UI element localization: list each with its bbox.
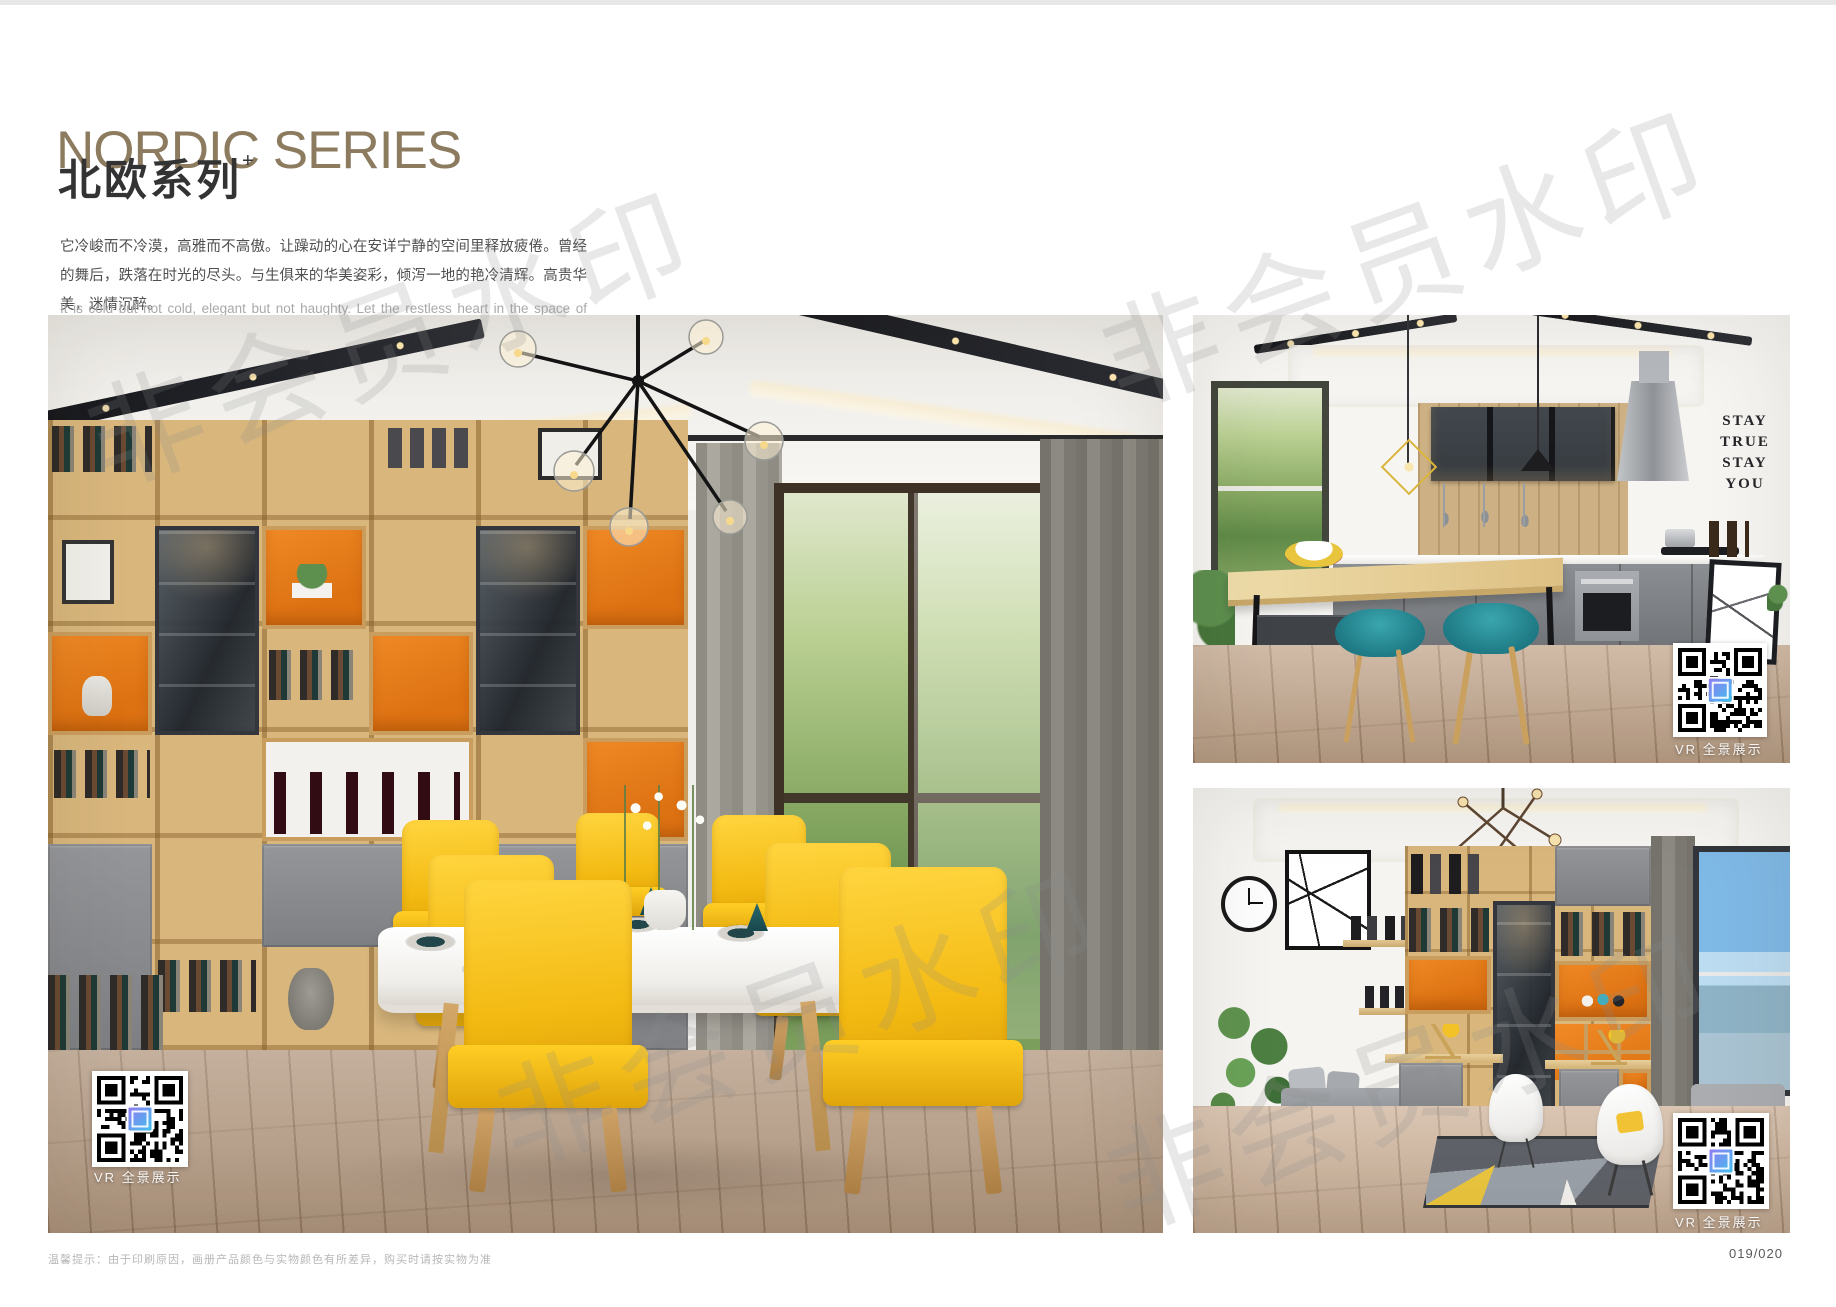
bench-cushion: [1281, 1088, 1461, 1118]
window: [1211, 381, 1329, 585]
plant-leaves: [1193, 570, 1235, 662]
desk-panel: [1399, 1063, 1463, 1125]
picture-frame: [62, 540, 114, 604]
cove-light: [1313, 349, 1673, 357]
study-room-photo: VR 全景展示: [1193, 788, 1790, 1233]
books-row: [54, 750, 150, 798]
orange-shelf-cell: [48, 632, 152, 735]
chair-pillow: [1616, 1110, 1645, 1133]
abstract-art-frame: [1285, 850, 1371, 950]
chair-seat: [703, 903, 815, 937]
orange-shelf-cell: [262, 526, 366, 629]
wall-decor-text: STAY TRUE STAY YOU: [1713, 411, 1777, 495]
gray-cabinet-door: [1555, 846, 1651, 906]
vr-panorama-label: VR 全景展示: [1675, 739, 1763, 758]
subtitle-text: 北欧系列: [58, 157, 242, 205]
stool-seat: [1335, 609, 1425, 657]
wall-text-line: STAY: [1713, 453, 1777, 474]
potted-plant: [292, 564, 332, 598]
books-row: [269, 650, 359, 700]
geometric-pendant-lamp: [1381, 439, 1438, 496]
shelf-decor-books: [1365, 986, 1419, 1008]
window-mullion-horizontal: [784, 793, 1060, 803]
vr-panorama-label: VR 全景展示: [94, 1167, 182, 1186]
shelf-decor-books: [1411, 854, 1485, 894]
sputnik-chandelier: [1433, 788, 1573, 908]
desk-lamp: [1425, 1024, 1461, 1059]
wood-panel-wall: [1418, 403, 1628, 563]
books-row: [52, 426, 152, 472]
qr-cube-logo: [1707, 677, 1734, 704]
orange-shelf-cell: [369, 632, 473, 735]
flower-vase: [644, 890, 686, 930]
orange-shelf-cell: [1405, 956, 1491, 1014]
kitchen-photo: STAY TRUE STAY YOU VR 全景展示: [1193, 315, 1790, 763]
cooktop: [1661, 547, 1739, 555]
potted-plant: [1201, 988, 1311, 1134]
bench-pillow: [1288, 1066, 1327, 1096]
chair-back: [712, 815, 806, 914]
curtain-right: [1040, 439, 1163, 1107]
page-number: 019/020: [1729, 1246, 1783, 1261]
glass-upper-cabinet: [1431, 407, 1615, 481]
island-leg: [1248, 595, 1260, 757]
ceiling-track-light: [1254, 315, 1458, 354]
chair-back: [839, 867, 1007, 1062]
ceiling-cove: [1288, 345, 1704, 407]
dining-chair: [703, 815, 815, 975]
desk-chair: [1489, 1074, 1543, 1168]
wall-text-line: TRUE: [1713, 432, 1777, 453]
window-seat-cushion: [1691, 1084, 1785, 1112]
footer-disclaimer: 温馨提示：由于印刷原因，画册产品颜色与实物颜色有所差异，购买时请按实物为准: [48, 1251, 492, 1267]
pendant-lamp-shade: [1521, 449, 1555, 471]
qr-cube-logo: [1707, 1147, 1734, 1174]
vase: [82, 676, 112, 716]
wall-text-line: YOU: [1713, 474, 1777, 495]
qr-code: [1673, 643, 1767, 737]
subtitle-plus: +: [242, 150, 254, 172]
cove-light: [749, 380, 1137, 450]
stool-seat: [1443, 603, 1539, 654]
wall-text-line: STAY: [1713, 411, 1777, 432]
desk-lamp: [1591, 1030, 1627, 1065]
wine-bottles: [274, 772, 460, 834]
island-bar-top: [1228, 558, 1563, 607]
desk-chair: [1597, 1084, 1663, 1196]
qr-code: [1673, 1113, 1769, 1209]
hood-duct: [1639, 351, 1669, 383]
window-mullion-horizontal: [1218, 486, 1322, 491]
bar-stool: [1443, 603, 1539, 745]
cove-light: [1278, 804, 1708, 813]
chair-seat: [448, 1045, 648, 1108]
shelf-decor-books: [1351, 916, 1413, 940]
island-leg: [1546, 587, 1558, 757]
bar-stool: [1335, 609, 1425, 743]
chair-seat: [823, 1040, 1023, 1106]
qr-code: [92, 1071, 188, 1167]
gray-cabinet-door: [48, 844, 152, 1050]
qr-cube-logo: [126, 1105, 153, 1132]
wall-shelf: [1359, 1008, 1431, 1015]
plant-leaves: [1767, 583, 1789, 611]
floor-level-books: [48, 975, 166, 1051]
window: [1693, 846, 1790, 1096]
plant-pot: [1233, 1134, 1287, 1192]
chair-back: [464, 880, 632, 1066]
ceramic-jar: [288, 968, 334, 1030]
wall-shelf: [1343, 940, 1431, 947]
ceiling-track-light: [48, 318, 485, 435]
sputnik-chandelier: [478, 315, 798, 575]
books-row: [158, 960, 256, 1012]
chair-shell: [1489, 1074, 1543, 1142]
built-in-oven: [1575, 571, 1639, 641]
countertop: [1333, 555, 1765, 564]
gray-cabinet-door: [262, 844, 473, 947]
shelf-decor-vases: [1577, 983, 1629, 1013]
desk-top: [1385, 1054, 1503, 1063]
orange-shelf-cell: [583, 738, 688, 841]
range-hood: [1617, 381, 1689, 481]
page-top-edge: [0, 0, 1836, 5]
page-subtitle-zh: 北欧系列+: [58, 146, 254, 208]
orange-shelf-cell: [1555, 961, 1651, 1021]
books-row: [1561, 912, 1645, 956]
wall-clock: [1221, 876, 1277, 932]
napkin-cone: [746, 903, 768, 931]
glass-display-cabinet: [155, 526, 259, 735]
dining-chair: [823, 867, 1023, 1182]
wine-shelf-cell: [262, 738, 473, 841]
books-row: [1409, 908, 1489, 952]
vr-panorama-label: VR 全景展示: [1675, 1212, 1763, 1231]
ceiling-track-light: [1523, 315, 1752, 346]
decor-boxes: [388, 428, 468, 468]
ceiling-cove: [1253, 798, 1739, 862]
orange-cubby-grid: [1555, 1024, 1651, 1080]
bench-base: [1289, 1116, 1457, 1152]
stacked-bowls: [1285, 541, 1343, 567]
cooking-pot: [1665, 529, 1695, 547]
hanging-utensils: [1443, 483, 1573, 527]
dining-chair: [448, 880, 648, 1180]
window-mullion-horizontal: [1699, 972, 1790, 976]
oil-bottles: [1709, 521, 1749, 557]
desk-top: [1545, 1060, 1671, 1069]
pendant-wire: [1407, 315, 1409, 465]
dining-room-photo: VR 全景展示: [48, 315, 1163, 1233]
pendant-wire: [1537, 315, 1539, 451]
bench-pillow: [1326, 1071, 1360, 1098]
